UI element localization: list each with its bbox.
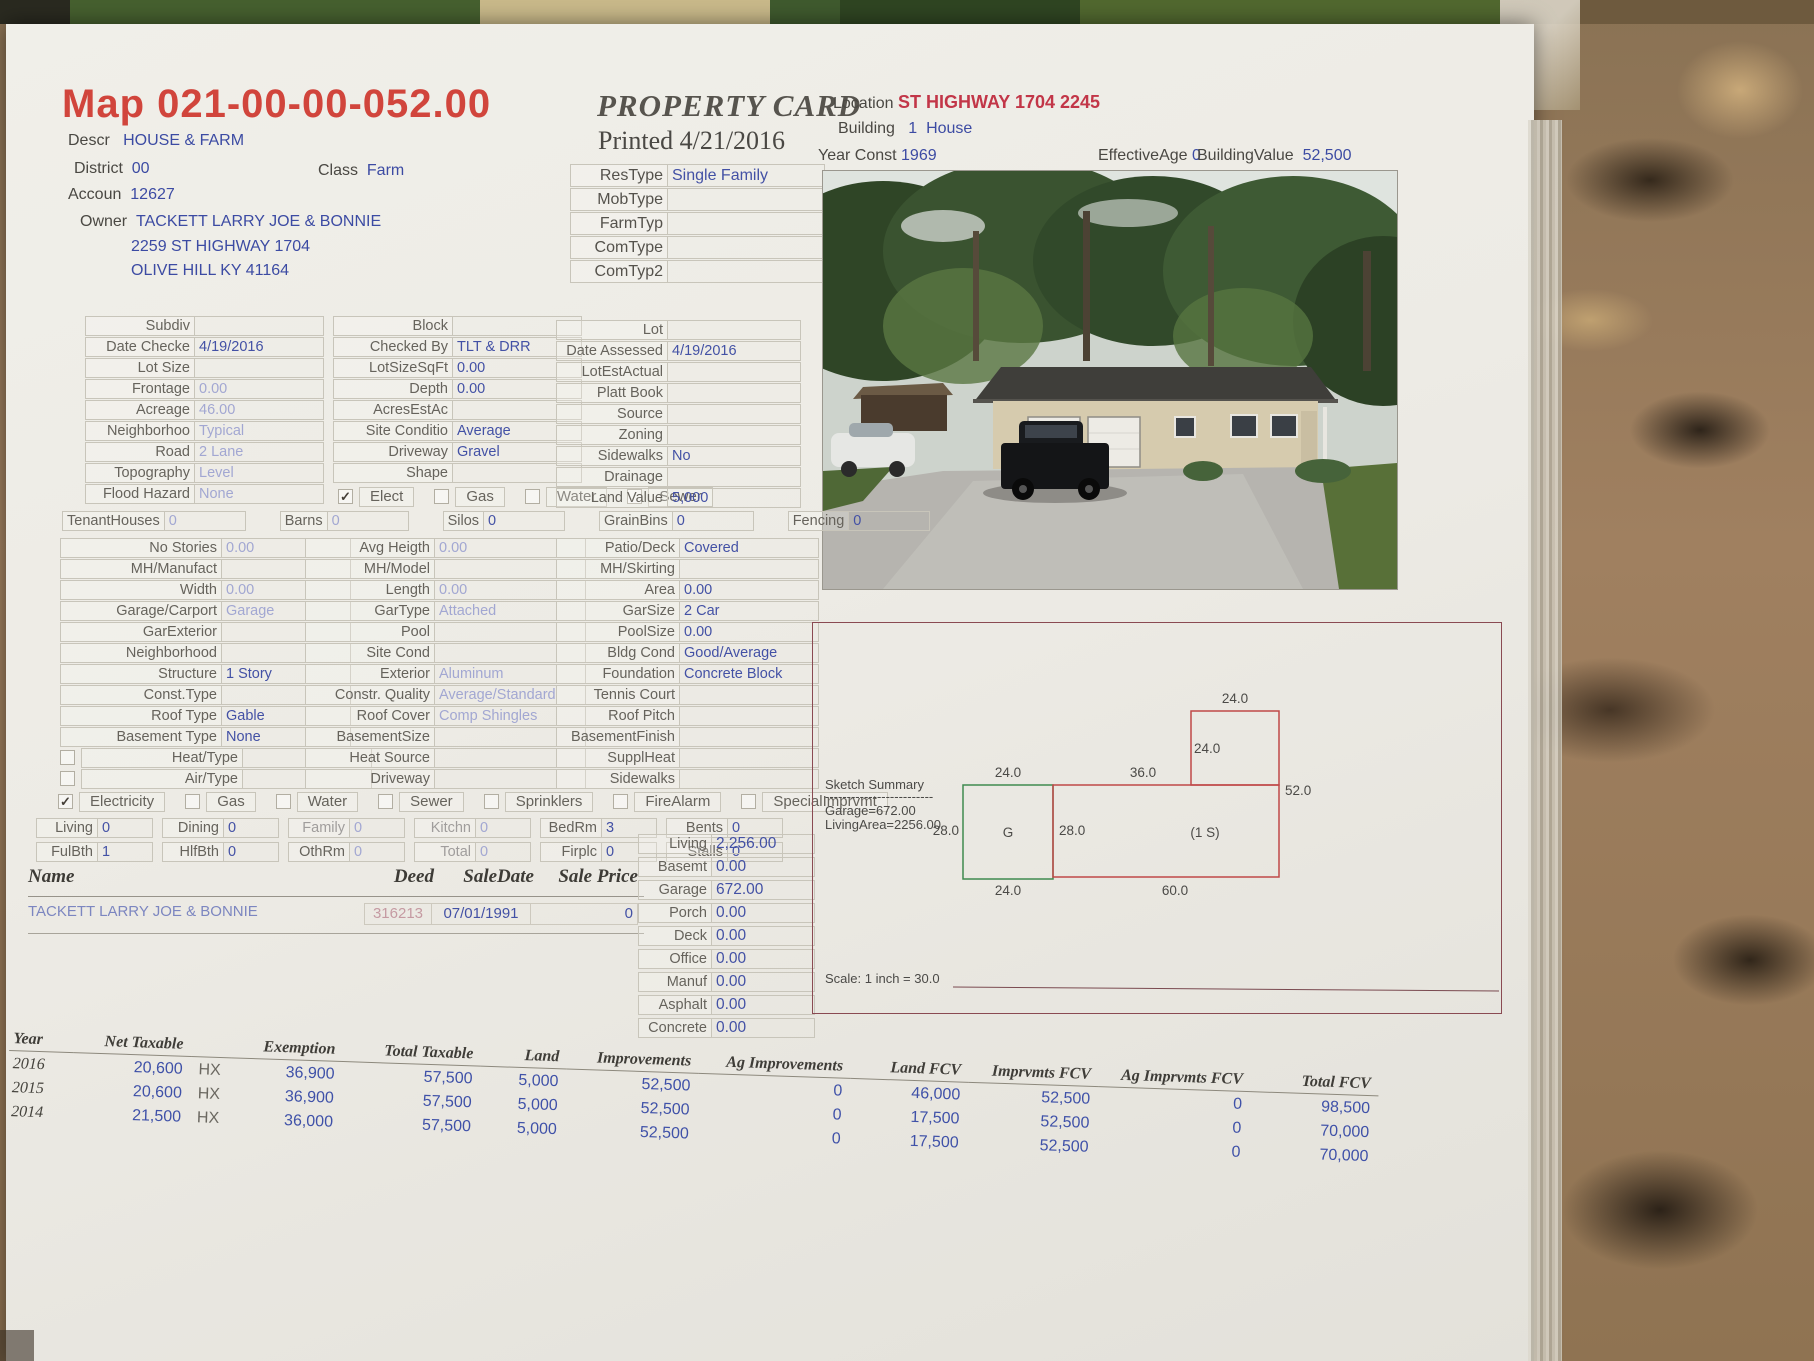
- tax-cell-2014-land-fcv: 17,500: [848, 1127, 967, 1155]
- location-label: Location: [833, 95, 894, 112]
- field-value-concrete: 0.00: [711, 1018, 815, 1038]
- descr-value: HOUSE & FARM: [123, 132, 244, 149]
- field-row-roof-pitch: Roof Pitch: [556, 706, 819, 727]
- sales-col-saleprice: Sale Price: [534, 866, 638, 888]
- field-label-pool: Pool: [305, 622, 434, 642]
- utility-label-gas: Gas: [455, 487, 505, 507]
- field-row-tennis-court: Tennis Court: [556, 685, 819, 706]
- field-row-lotsizesqft: LotSizeSqFt0.00: [333, 358, 582, 379]
- tax-col-land-fcv: Land FCV: [851, 1054, 970, 1083]
- field-value-neighborhoo: Typical: [194, 421, 324, 441]
- field-cell-living: Living0: [36, 818, 153, 838]
- field-label-roof-type: Roof Type: [60, 706, 221, 726]
- field-row-site-conditio: Site ConditioAverage: [333, 421, 582, 442]
- owner-address-line2: OLIVE HILL KY 41164: [131, 262, 289, 280]
- field-row-concrete: Concrete0.00: [638, 1018, 815, 1041]
- field-row-asphalt: Asphalt0.00: [638, 995, 815, 1018]
- field-row-drainage: Drainage: [556, 467, 801, 488]
- map-number-title: Map 021-00-00-052.00: [62, 82, 491, 127]
- field-row-depth: Depth0.00: [333, 379, 582, 400]
- field-label-supplheat: SupplHeat: [556, 748, 679, 768]
- field-value-basementfinish: [679, 727, 819, 747]
- checkbox-heat-type-unchecked: [60, 750, 75, 765]
- farm-counts-row: TenantHouses0Barns0Silos0GrainBins0Fenci…: [62, 511, 964, 531]
- field-value-hlfbth: 0: [223, 842, 279, 862]
- field-label-no-stories: No Stories: [60, 538, 221, 558]
- field-value-silos: 0: [483, 511, 565, 531]
- field-label-area: Area: [556, 580, 679, 600]
- field-row-poolsize: PoolSize0.00: [556, 622, 819, 643]
- field-row-heat-source: Heat Source: [305, 748, 586, 769]
- field-value-restype: Single Family: [667, 164, 825, 187]
- field-value-othrm: 0: [349, 842, 405, 862]
- sales-col-deed: Deed: [368, 866, 434, 888]
- field-row-garage: Garage672.00: [638, 880, 815, 903]
- field-value-comtype: [667, 236, 825, 259]
- field-label-acreage: Acreage: [85, 400, 194, 420]
- field-row-basementfinish: BasementFinish: [556, 727, 819, 748]
- tax-cell-2015-year: 2015: [8, 1075, 73, 1101]
- field-label-driveway: Driveway: [333, 442, 452, 462]
- owner-address-line1: 2259 ST HIGHWAY 1704: [131, 238, 310, 256]
- field-label-tenanthouses: TenantHouses: [62, 511, 164, 531]
- field-value-source: [667, 404, 801, 424]
- field-row-gartype: GarTypeAttached: [305, 601, 586, 622]
- field-label-gartype: GarType: [305, 601, 434, 621]
- district-value: 00: [132, 160, 150, 177]
- field-value-comtyp2: [667, 260, 825, 283]
- utility-sprinklers: Sprinklers: [484, 792, 594, 812]
- field-value-bldg-cond: Good/Average: [679, 643, 819, 663]
- district-label: District: [74, 160, 123, 177]
- checkbox-gas-unchecked: [434, 489, 449, 504]
- field-value-garage: 672.00: [711, 880, 815, 900]
- sale-deed-number: 316213: [364, 903, 432, 925]
- field-label-family: Family: [288, 818, 349, 838]
- field-label-barns: Barns: [280, 511, 327, 531]
- field-row-source: Source: [556, 404, 801, 425]
- field-row-porch: Porch0.00: [638, 903, 815, 926]
- tax-cell-2014-year: 2014: [7, 1099, 72, 1125]
- field-label-lot: Lot: [556, 320, 667, 340]
- utility-gas: Gas: [185, 792, 256, 812]
- field-label-farmtyp: FarmTyp: [570, 212, 667, 235]
- field-value-acreage: 46.00: [194, 400, 324, 420]
- tax-cell-2014-total-taxable: 57,500: [341, 1110, 480, 1139]
- dim-right-height: 52.0: [1285, 783, 1311, 798]
- sale-price: 0: [531, 903, 638, 925]
- account-value: 12627: [130, 186, 175, 203]
- field-label-dining: Dining: [162, 818, 223, 838]
- field-row-comtype: ComType: [570, 236, 825, 260]
- field-value-mobtype: [667, 188, 825, 211]
- tax-col-code: [191, 1032, 232, 1058]
- field-value-basemt: 0.00: [711, 857, 815, 877]
- field-label-neighborhood: Neighborhood: [60, 643, 221, 663]
- tax-cell-2014-exemption: 36,000: [229, 1106, 342, 1134]
- checkbox-water-unchecked: [525, 489, 540, 504]
- field-value-sidewalks: No: [667, 446, 801, 466]
- field-value-porch: 0.00: [711, 903, 815, 923]
- effective-age-label: EffectiveAge: [1098, 147, 1188, 164]
- field-value-supplheat: [679, 748, 819, 768]
- field-row-exterior: ExteriorAluminum: [305, 664, 586, 685]
- field-row-deck: Deck0.00: [638, 926, 815, 949]
- field-label-comtyp2: ComTyp2: [570, 260, 667, 283]
- checkbox-water-unchecked: [276, 794, 291, 809]
- field-row-supplheat: SupplHeat: [556, 748, 819, 769]
- residence-type-table: ResTypeSingle FamilyMobTypeFarmTypComTyp…: [570, 164, 825, 284]
- field-label-length: Length: [305, 580, 434, 600]
- tax-col-year: Year: [9, 1026, 74, 1053]
- field-label-zoning: Zoning: [556, 425, 667, 445]
- field-label-date-checke: Date Checke: [85, 337, 194, 357]
- field-label-roof-cover: Roof Cover: [305, 706, 434, 726]
- checkbox-specialimprvmt-unchecked: [741, 794, 756, 809]
- building-fields-col2: Avg Heigth0.00MH/ModelLength0.00GarTypeA…: [305, 538, 586, 790]
- photographed-property-card: { "header": { "map_title": "Map 021-00-0…: [0, 0, 1814, 1361]
- field-value-dining: 0: [223, 818, 279, 838]
- utility-gas: Gas: [434, 487, 505, 507]
- sales-col-name: Name: [28, 866, 368, 888]
- field-label-fulbth: FulBth: [36, 842, 97, 862]
- field-label-constr-quality: Constr. Quality: [305, 685, 434, 705]
- field-row-patio-deck: Patio/DeckCovered: [556, 538, 819, 559]
- field-label-site-conditio: Site Conditio: [333, 421, 452, 441]
- countertop-corner: [0, 1330, 34, 1361]
- dim-top: 24.0: [1222, 691, 1248, 706]
- dim-garage-left: 28.0: [933, 823, 959, 838]
- field-row-frontage: Frontage0.00: [85, 379, 324, 400]
- utility-water: Water: [276, 792, 358, 812]
- utility-sewer: Sewer: [378, 792, 464, 812]
- field-label-lotsizesqft: LotSizeSqFt: [333, 358, 452, 378]
- field-value-deck: 0.00: [711, 926, 815, 946]
- field-label-porch: Porch: [638, 903, 711, 923]
- field-label-air-type: Air/Type: [81, 769, 242, 789]
- field-label-hlfbth: HlfBth: [162, 842, 223, 862]
- tax-cell-2014-net-taxable: 21,500: [71, 1101, 190, 1129]
- field-row-garsize: GarSize2 Car: [556, 601, 819, 622]
- land-fields-col2: BlockChecked ByTLT & DRRLotSizeSqFt0.00D…: [333, 316, 582, 484]
- field-row-driveway: DrivewayGravel: [333, 442, 582, 463]
- tax-col-net-taxable: Net Taxable: [73, 1028, 192, 1057]
- building-label: Building: [838, 120, 895, 137]
- tax-cell-2014-code: HX: [189, 1105, 230, 1130]
- field-row-subdiv: Subdiv: [85, 316, 324, 337]
- field-value-living: 2,256.00: [711, 834, 815, 854]
- field-label-basementsize: BasementSize: [305, 727, 434, 747]
- field-row-road: Road2 Lane: [85, 442, 324, 463]
- class-label: Class: [318, 162, 358, 179]
- class-value: Farm: [367, 162, 404, 179]
- field-label-sidewalks: Sidewalks: [556, 769, 679, 789]
- tax-cell-2014-ag-improvements: 0: [696, 1122, 849, 1151]
- field-label-roof-pitch: Roof Pitch: [556, 706, 679, 726]
- field-label-checked-by: Checked By: [333, 337, 452, 357]
- field-cell-grainbins: GrainBins0: [599, 511, 754, 531]
- descr-label: Descr: [68, 132, 110, 149]
- field-label-width: Width: [60, 580, 221, 600]
- field-row-avg-heigth: Avg Heigth0.00: [305, 538, 586, 559]
- field-label-heat-source: Heat Source: [305, 748, 434, 768]
- field-cell-kitchn: Kitchn0: [414, 818, 531, 838]
- land-fields-col3: LotDate Assessed4/19/2016LotEstActualPla…: [556, 320, 801, 509]
- field-label-mobtype: MobType: [570, 188, 667, 211]
- field-label-driveway: Driveway: [305, 769, 434, 789]
- field-row-sidewalks: Sidewalks: [556, 769, 819, 790]
- field-label-depth: Depth: [333, 379, 452, 399]
- field-value-lot: [667, 320, 801, 340]
- sketch-drawing: Sketch Summary -------------------------…: [813, 623, 1501, 1013]
- field-value-lotestactual: [667, 362, 801, 382]
- field-row-topography: TopographyLevel: [85, 463, 324, 484]
- field-label-sidewalks: Sidewalks: [556, 446, 667, 466]
- field-cell-dining: Dining0: [162, 818, 279, 838]
- field-row-date-checke: Date Checke4/19/2016: [85, 337, 324, 358]
- field-label-comtype: ComType: [570, 236, 667, 259]
- field-label-basemt: Basemt: [638, 857, 711, 877]
- checkbox-sprinklers-unchecked: [484, 794, 499, 809]
- field-row-sidewalks: SidewalksNo: [556, 446, 801, 467]
- utility-label-sprinklers: Sprinklers: [505, 792, 594, 812]
- tax-cell-2016-code: HX: [190, 1057, 231, 1082]
- field-label-bldg-cond: Bldg Cond: [556, 643, 679, 663]
- field-value-barns: 0: [327, 511, 409, 531]
- checkbox-electricity-checked: ✓: [58, 794, 73, 809]
- field-label-grainbins: GrainBins: [599, 511, 672, 531]
- field-row-land-value: Land Value5,000: [556, 488, 801, 509]
- field-cell-silos: Silos0: [443, 511, 565, 531]
- field-label-const-type: Const.Type: [60, 685, 221, 705]
- field-value-asphalt: 0.00: [711, 995, 815, 1015]
- utility-label-gas: Gas: [206, 792, 256, 812]
- field-label-mh-manufact: MH/Manufact: [60, 559, 221, 579]
- garage-letter: G: [1003, 825, 1014, 840]
- owner-label: Owner: [80, 213, 127, 230]
- field-value-total: 0: [475, 842, 531, 862]
- tax-cell-2014-imprvmts-fcv: 52,500: [966, 1131, 1097, 1159]
- field-value-sidewalks: [679, 769, 819, 789]
- field-row-date-assessed: Date Assessed4/19/2016: [556, 341, 801, 362]
- field-row-mh-skirting: MH/Skirting: [556, 559, 819, 580]
- field-label-office: Office: [638, 949, 711, 969]
- location-value: ST HIGHWAY 1704 2245: [898, 92, 1100, 112]
- field-value-frontage: 0.00: [194, 379, 324, 399]
- field-label-bedrm: BedRm: [540, 818, 601, 838]
- field-cell-fencing: Fencing0: [788, 511, 931, 531]
- utility-label-sewer: Sewer: [399, 792, 464, 812]
- field-value-tennis-court: [679, 685, 819, 705]
- tax-cell-2014-total-fcv: 70,000: [1248, 1140, 1377, 1168]
- field-label-land-value: Land Value: [556, 488, 667, 508]
- dim-garage-top: 24.0: [995, 765, 1021, 780]
- sketch-summary-divider: -------------------------: [825, 789, 933, 804]
- field-label-restype: ResType: [570, 164, 667, 187]
- field-label-garsize: GarSize: [556, 601, 679, 621]
- dim-main-bottom: 60.0: [1162, 883, 1188, 898]
- field-value-manuf: 0.00: [711, 972, 815, 992]
- field-value-lot-size: [194, 358, 324, 378]
- utility-elect: ✓Elect: [338, 487, 414, 507]
- field-row-block: Block: [333, 316, 582, 337]
- sales-history-table: NameDeedSaleDateSale Price TACKETT LARRY…: [28, 866, 644, 934]
- field-label-firplc: Firplc: [540, 842, 601, 862]
- field-label-shape: Shape: [333, 463, 452, 483]
- field-value-platt-book: [667, 383, 801, 403]
- field-label-block: Block: [333, 316, 452, 336]
- field-label-patio-deck: Patio/Deck: [556, 538, 679, 558]
- field-row-lot-size: Lot Size: [85, 358, 324, 379]
- field-value-road: 2 Lane: [194, 442, 324, 462]
- field-value-living: 0: [97, 818, 153, 838]
- field-label-structure: Structure: [60, 664, 221, 684]
- building-value: 1 House: [908, 120, 972, 137]
- field-row-pool: Pool: [305, 622, 586, 643]
- field-value-farmtyp: [667, 212, 825, 235]
- field-row-checked-by: Checked ByTLT & DRR: [333, 337, 582, 358]
- sketch-living-area: LivingArea=2256.00: [825, 817, 941, 832]
- field-label-lot-size: Lot Size: [85, 358, 194, 378]
- field-row-farmtyp: FarmTyp: [570, 212, 825, 236]
- field-value-mh-skirting: [679, 559, 819, 579]
- field-row-acresestac: AcresEstAc: [333, 400, 582, 421]
- field-label-drainage: Drainage: [556, 467, 667, 487]
- dim-main-left: 28.0: [1059, 823, 1085, 838]
- field-label-mh-skirting: MH/Skirting: [556, 559, 679, 579]
- sales-header-row: NameDeedSaleDateSale Price: [28, 866, 644, 897]
- utility-label-firealarm: FireAlarm: [634, 792, 721, 812]
- dim-garage-bottom: 24.0: [995, 883, 1021, 898]
- checkbox-sewer-unchecked: [378, 794, 393, 809]
- field-label-platt-book: Platt Book: [556, 383, 667, 403]
- field-label-garexterior: GarExterior: [60, 622, 221, 642]
- field-label-tennis-court: Tennis Court: [556, 685, 679, 705]
- sketch-scale: Scale: 1 inch = 30.0: [825, 971, 940, 986]
- field-label-kitchn: Kitchn: [414, 818, 475, 838]
- field-value-fulbth: 1: [97, 842, 153, 862]
- field-row-office: Office0.00: [638, 949, 815, 972]
- field-row-basemt: Basemt0.00: [638, 857, 815, 880]
- field-label-basement-type: Basement Type: [60, 727, 221, 747]
- paper-stack-edge: [1528, 120, 1562, 1361]
- tax-col-exemption: Exemption: [231, 1033, 344, 1062]
- field-label-avg-heigth: Avg Heigth: [305, 538, 434, 558]
- utility-label-water: Water: [297, 792, 358, 812]
- field-row-comtyp2: ComTyp2: [570, 260, 825, 284]
- utility-label-elect: Elect: [359, 487, 414, 507]
- checkbox-air-type-unchecked: [60, 771, 75, 786]
- sketch-main-room-outline: [1053, 785, 1279, 877]
- field-row-constr-quality: Constr. QualityAverage/Standard: [305, 685, 586, 706]
- sketch-divider-line: [953, 987, 1499, 991]
- field-row-site-cond: Site Cond: [305, 643, 586, 664]
- field-label-othrm: OthRm: [288, 842, 349, 862]
- field-cell-fulbth: FulBth1: [36, 842, 153, 862]
- field-cell-tenanthouses: TenantHouses0: [62, 511, 246, 531]
- checkbox-elect-checked: ✓: [338, 489, 353, 504]
- field-label-road: Road: [85, 442, 194, 462]
- tax-cell-2014-improvements: 52,500: [564, 1117, 697, 1145]
- field-label-living: Living: [638, 834, 711, 854]
- field-label-garage: Garage: [638, 880, 711, 900]
- field-row-driveway: Driveway: [305, 769, 586, 790]
- story-label: (1 S): [1190, 825, 1219, 840]
- field-label-acresestac: AcresEstAc: [333, 400, 452, 420]
- sales-row: TACKETT LARRY JOE & BONNIE31621307/01/19…: [28, 897, 644, 934]
- sale-date: 07/01/1991: [432, 903, 531, 925]
- field-label-fencing: Fencing: [788, 511, 849, 531]
- field-label-silos: Silos: [443, 511, 483, 531]
- field-row-foundation: FoundationConcrete Block: [556, 664, 819, 685]
- field-label-deck: Deck: [638, 926, 711, 946]
- tax-cell-2016-year: 2016: [8, 1051, 73, 1077]
- field-value-poolsize: 0.00: [679, 622, 819, 642]
- field-value-tenanthouses: 0: [164, 511, 246, 531]
- checkbox-firealarm-unchecked: [613, 794, 628, 809]
- field-row-lotestactual: LotEstActual: [556, 362, 801, 383]
- field-label-asphalt: Asphalt: [638, 995, 711, 1015]
- field-value-fencing: 0: [848, 511, 930, 531]
- field-row-shape: Shape: [333, 463, 582, 484]
- utility-electricity: ✓Electricity: [58, 792, 165, 812]
- tax-cell-2015-exemption: 36,900: [229, 1082, 342, 1110]
- tax-cell-2014-ag-imprvmts-fcv: 0: [1096, 1135, 1249, 1164]
- field-row-restype: ResTypeSingle Family: [570, 164, 825, 188]
- field-label-subdiv: Subdiv: [85, 316, 194, 336]
- field-label-source: Source: [556, 404, 667, 424]
- field-value-grainbins: 0: [672, 511, 754, 531]
- field-label-frontage: Frontage: [85, 379, 194, 399]
- field-row-acreage: Acreage46.00: [85, 400, 324, 421]
- tax-cell-2016-land: 5,000: [480, 1067, 567, 1094]
- field-cell-total: Total0: [414, 842, 531, 862]
- field-row-neighborhoo: NeighborhooTypical: [85, 421, 324, 442]
- sales-col-saledate: SaleDate: [434, 866, 534, 888]
- field-label-heat-type: Heat/Type: [81, 748, 242, 768]
- field-cell-barns: Barns0: [280, 511, 409, 531]
- sketch-garage-area: Garage=672.00: [825, 803, 916, 818]
- building-value-amount: 52,500: [1303, 147, 1352, 164]
- field-row-platt-book: Platt Book: [556, 383, 801, 404]
- year-const-value: 1969: [901, 147, 937, 164]
- field-row-lot: Lot: [556, 320, 801, 341]
- field-value-topography: Level: [194, 463, 324, 483]
- field-row-mh-model: MH/Model: [305, 559, 586, 580]
- tax-cell-2016-exemption: 36,900: [230, 1058, 343, 1086]
- building-value-label: BuildingValue: [1197, 147, 1294, 164]
- sale-name: TACKETT LARRY JOE & BONNIE: [28, 903, 364, 920]
- field-row-basementsize: BasementSize: [305, 727, 586, 748]
- owner-value: TACKETT LARRY JOE & BONNIE: [136, 213, 381, 230]
- field-row-length: Length0.00: [305, 580, 586, 601]
- field-label-concrete: Concrete: [638, 1018, 711, 1038]
- field-value-date-checke: 4/19/2016: [194, 337, 324, 357]
- field-label-exterior: Exterior: [305, 664, 434, 684]
- field-value-office: 0.00: [711, 949, 815, 969]
- field-value-drainage: [667, 467, 801, 487]
- field-value-date-assessed: 4/19/2016: [667, 341, 801, 361]
- dim-upper-left: 24.0: [1194, 741, 1220, 756]
- field-value-foundation: Concrete Block: [679, 664, 819, 684]
- field-value-patio-deck: Covered: [679, 538, 819, 558]
- field-label-basementfinish: BasementFinish: [556, 727, 679, 747]
- field-label-site-cond: Site Cond: [305, 643, 434, 663]
- field-label-manuf: Manuf: [638, 972, 711, 992]
- field-label-neighborhoo: Neighborhoo: [85, 421, 194, 441]
- tax-cell-2014-land: 5,000: [479, 1115, 566, 1142]
- field-label-lotestactual: LotEstActual: [556, 362, 667, 382]
